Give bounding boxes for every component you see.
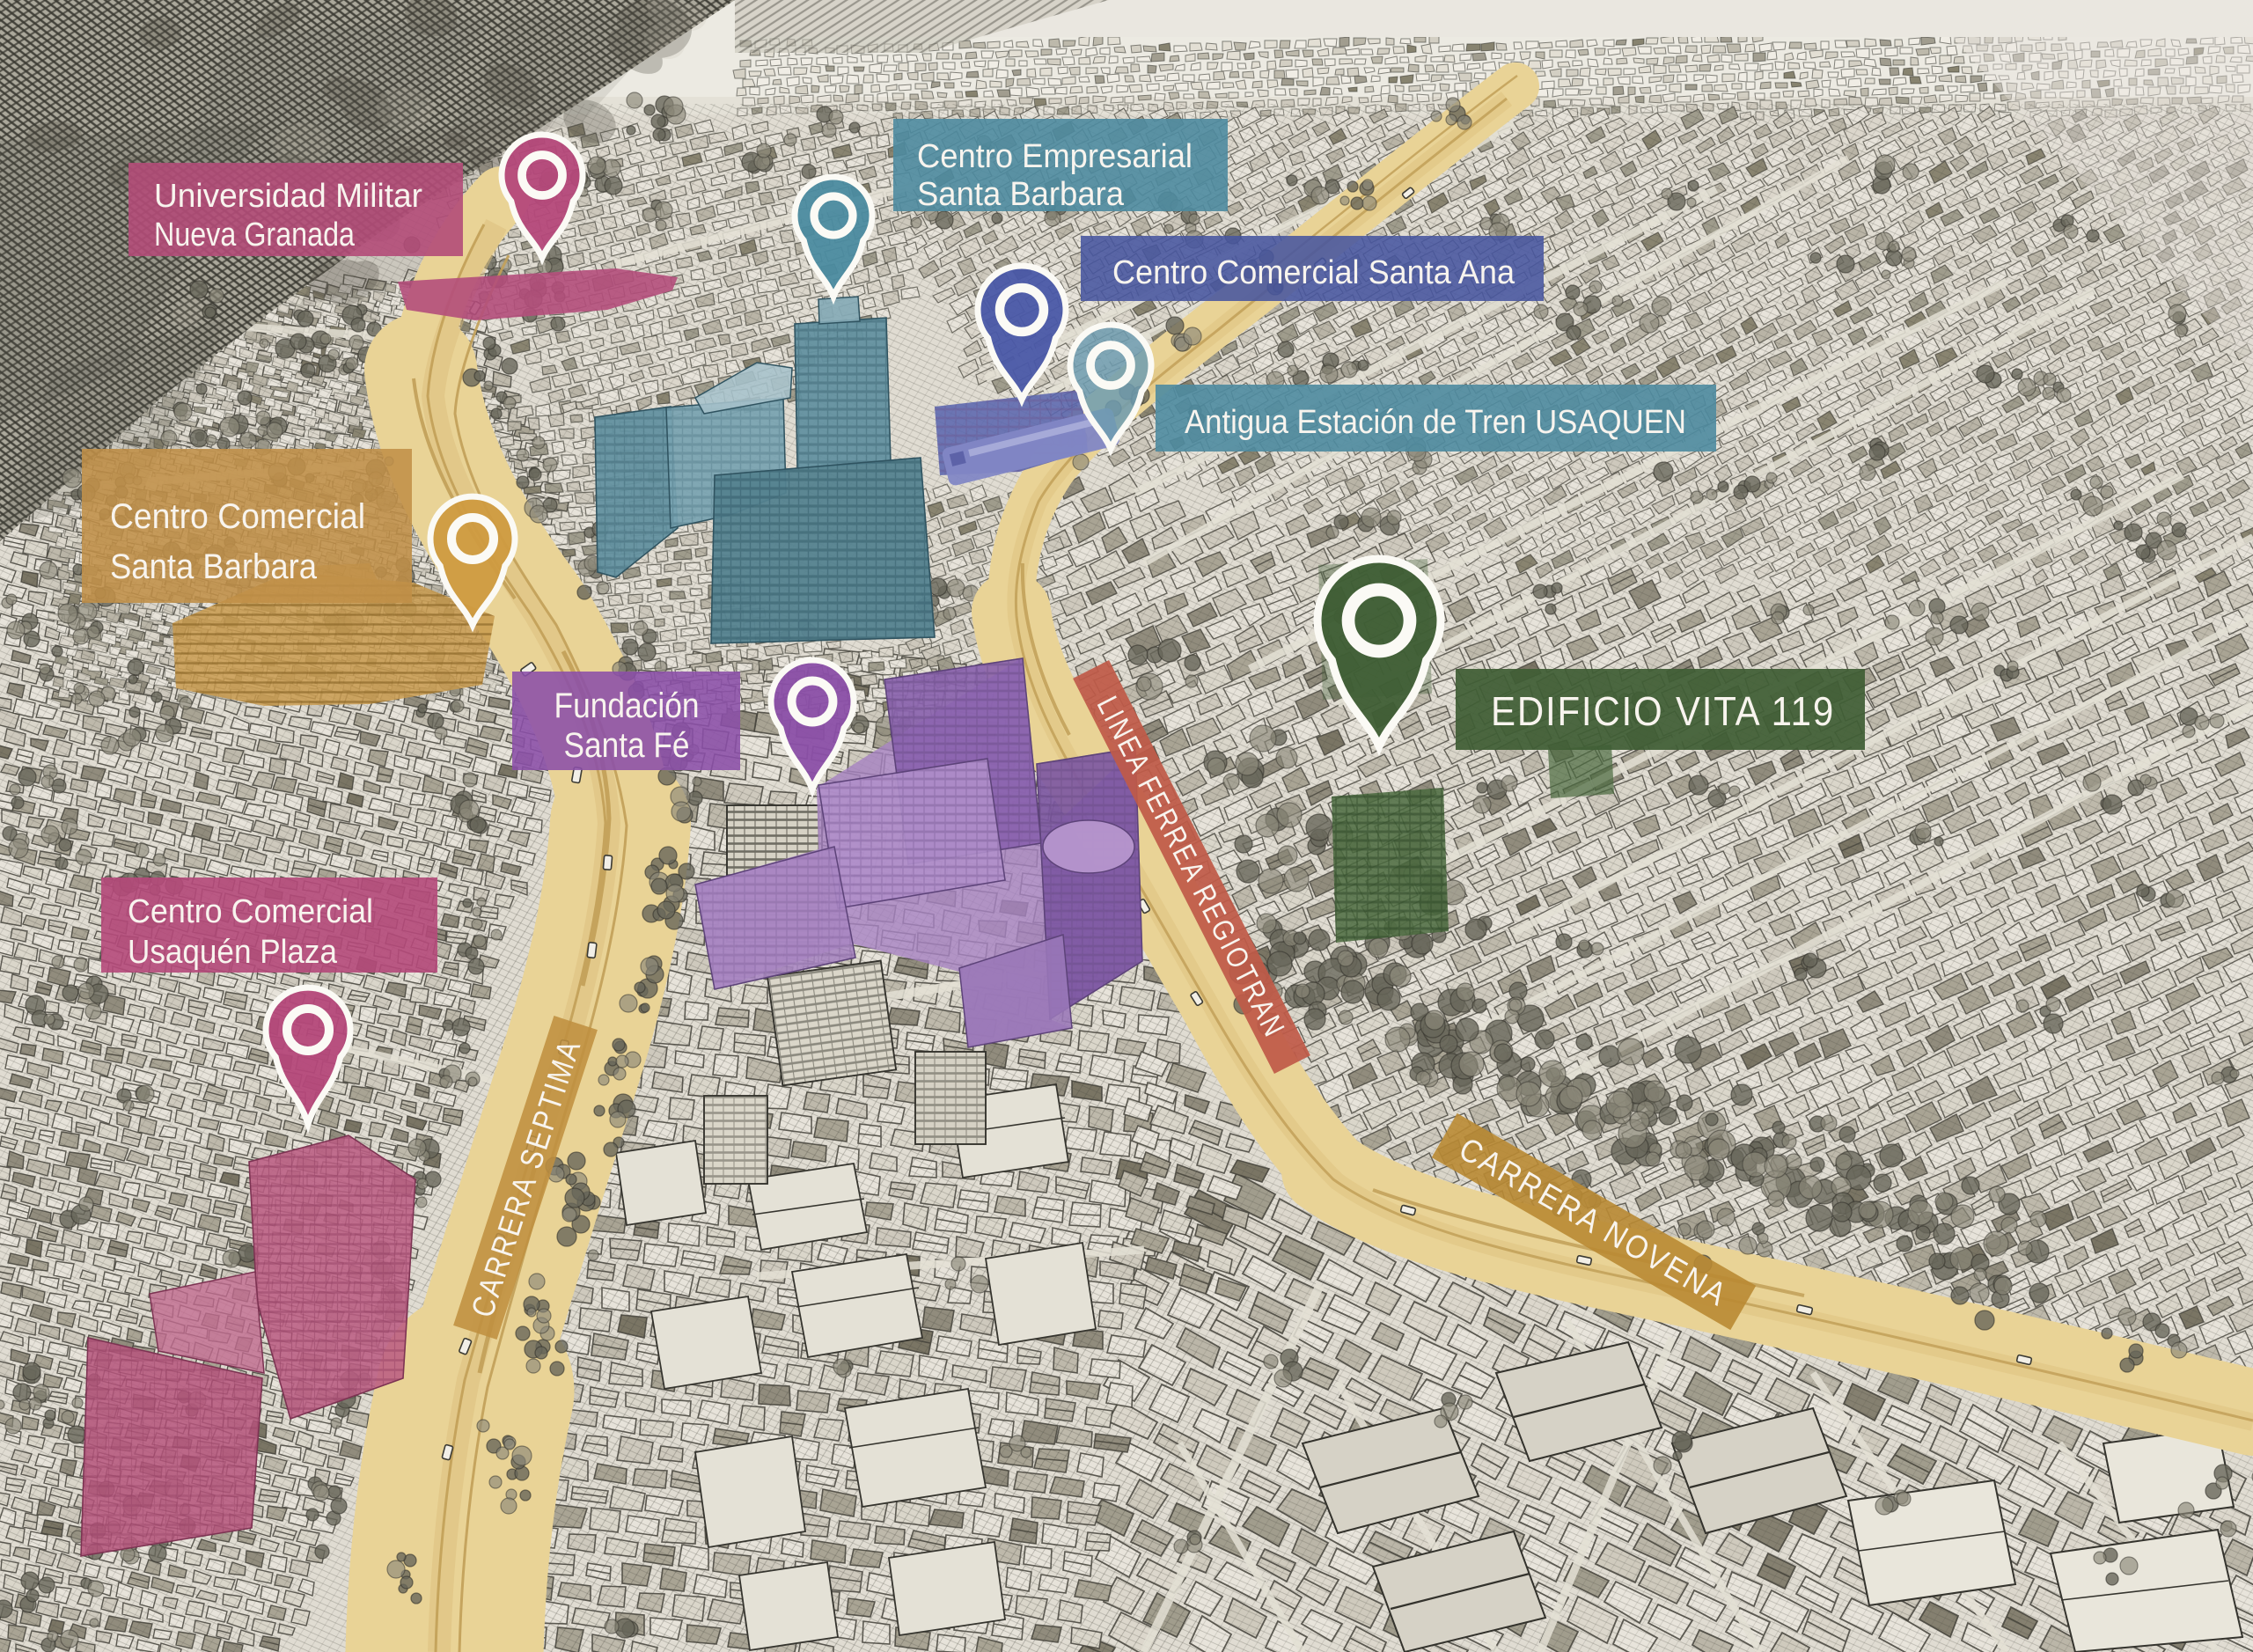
svg-text:Centro Empresarial: Centro Empresarial [917, 138, 1193, 175]
svg-text:Antigua Estación de Tren USAQU: Antigua Estación de Tren USAQUEN [1185, 404, 1686, 441]
svg-text:Centro Comercial: Centro Comercial [110, 497, 365, 536]
svg-text:Usaquén Plaza: Usaquén Plaza [128, 934, 338, 971]
svg-text:Nueva Granada: Nueva Granada [154, 217, 356, 253]
svg-text:Santa Barbara: Santa Barbara [110, 547, 318, 586]
svg-text:Centro Comercial Santa Ana: Centro Comercial Santa Ana [1112, 254, 1515, 291]
svg-text:Universidad Militar: Universidad Militar [154, 178, 422, 215]
svg-text:EDIFICIO VITA 119: EDIFICIO VITA 119 [1491, 688, 1835, 734]
svg-text:Centro Comercial: Centro Comercial [128, 893, 373, 930]
svg-text:Fundación: Fundación [554, 686, 700, 725]
svg-text:Santa Barbara: Santa Barbara [917, 176, 1125, 213]
svg-text:Santa Fé: Santa Fé [564, 726, 690, 765]
